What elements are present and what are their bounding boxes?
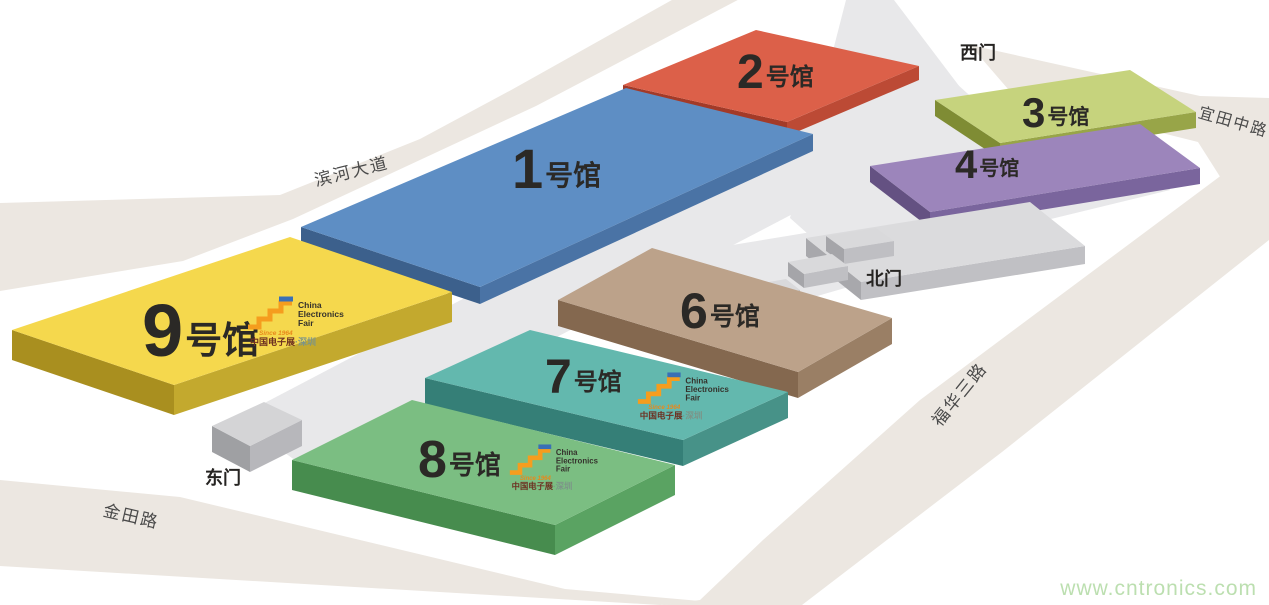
cef-cn-text: 中国电子展·深圳 — [640, 410, 703, 421]
gate-north-label: 北门 — [866, 268, 902, 289]
gate-west-label: 西门 — [960, 42, 996, 63]
cef-cn-text: 中国电子展·深圳 — [512, 481, 573, 491]
cef-since-text: Since 1964 — [259, 330, 293, 337]
cef-en-text: Fair — [556, 465, 570, 474]
exhibition-map-page: 2号馆3号馆4号馆1号馆9号馆6号馆7号馆8号馆Since 1964ChinaE… — [0, 0, 1269, 605]
cef-en-text: Fair — [685, 394, 701, 403]
cef-since-text: Since 1964 — [520, 476, 552, 482]
map-canvas: 2号馆3号馆4号馆1号馆9号馆6号馆7号馆8号馆Since 1964ChinaE… — [0, 0, 1269, 605]
cef-cn-text: 中国电子展·深圳 — [250, 336, 316, 347]
gate-east-label: 东门 — [205, 467, 241, 488]
cef-en-text: Fair — [298, 318, 314, 328]
watermark: www.cntronics.com — [1060, 577, 1257, 601]
